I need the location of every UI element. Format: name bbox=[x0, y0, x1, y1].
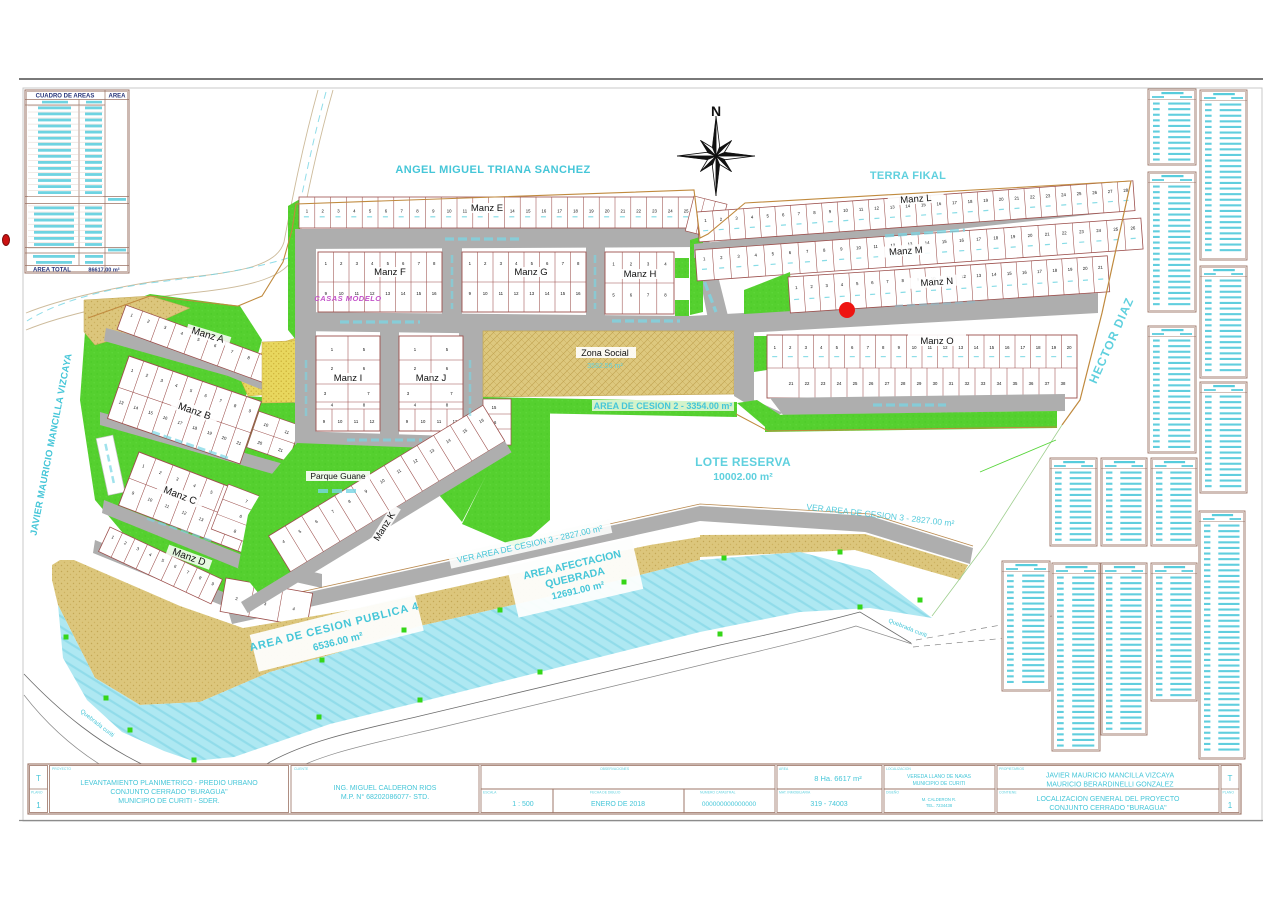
svg-text:TERRA FIKAL: TERRA FIKAL bbox=[870, 170, 946, 182]
svg-text:14: 14 bbox=[974, 345, 979, 350]
svg-text:Parque Guane: Parque Guane bbox=[310, 471, 366, 481]
svg-text:18: 18 bbox=[1036, 345, 1041, 350]
svg-text:33: 33 bbox=[981, 381, 986, 386]
svg-text:28: 28 bbox=[901, 381, 906, 386]
svg-text:25: 25 bbox=[684, 209, 689, 214]
svg-text:25: 25 bbox=[853, 381, 858, 386]
svg-text:N: N bbox=[711, 103, 721, 119]
svg-text:Manz H: Manz H bbox=[624, 269, 657, 280]
svg-text:1: 1 bbox=[1228, 801, 1233, 810]
svg-text:Manz J: Manz J bbox=[416, 373, 447, 384]
svg-text:ESCALA: ESCALA bbox=[483, 791, 497, 795]
svg-text:24: 24 bbox=[837, 381, 842, 386]
svg-text:16: 16 bbox=[576, 291, 581, 296]
svg-text:15: 15 bbox=[560, 291, 565, 296]
svg-text:ANGEL MIGUEL TRIANA SANCHEZ: ANGEL MIGUEL TRIANA SANCHEZ bbox=[395, 164, 590, 176]
svg-text:17: 17 bbox=[1020, 345, 1025, 350]
svg-text:MUNICIPIO DE CURITI: MUNICIPIO DE CURITI bbox=[913, 781, 966, 787]
svg-text:16: 16 bbox=[542, 209, 547, 214]
svg-text:20: 20 bbox=[1067, 345, 1072, 350]
svg-text:Manz L: Manz L bbox=[900, 193, 932, 206]
svg-text:18: 18 bbox=[573, 209, 578, 214]
svg-text:LOTE RESERVA: LOTE RESERVA bbox=[695, 455, 791, 469]
svg-text:M.P. N° 68202086077- STD.: M.P. N° 68202086077- STD. bbox=[341, 793, 429, 801]
svg-text:12: 12 bbox=[514, 291, 519, 296]
svg-text:CASAS MODELO: CASAS MODELO bbox=[314, 294, 381, 303]
svg-text:17: 17 bbox=[557, 209, 562, 214]
svg-text:32: 32 bbox=[965, 381, 970, 386]
svg-text:16: 16 bbox=[1005, 345, 1010, 350]
svg-text:36: 36 bbox=[1029, 381, 1034, 386]
svg-text:12: 12 bbox=[370, 419, 375, 424]
svg-text:CONJUNTO CERRADO "BURAGUA": CONJUNTO CERRADO "BURAGUA" bbox=[110, 789, 228, 796]
svg-text:11: 11 bbox=[499, 291, 504, 296]
svg-text:15: 15 bbox=[416, 291, 421, 296]
svg-text:LEVANTAMIENTO PLANIMETRICO - P: LEVANTAMIENTO PLANIMETRICO - PREDIO URBA… bbox=[80, 780, 258, 787]
svg-text:FECHA DE DIBUJO: FECHA DE DIBUJO bbox=[590, 791, 621, 795]
svg-text:10: 10 bbox=[338, 419, 343, 424]
svg-text:15: 15 bbox=[989, 345, 994, 350]
svg-text:MUNICIPIO DE CURITI - SDER.: MUNICIPIO DE CURITI - SDER. bbox=[118, 798, 220, 805]
svg-text:22: 22 bbox=[805, 381, 810, 386]
svg-text:VEREDA LLANO DE NAVAS: VEREDA LLANO DE NAVAS bbox=[907, 774, 972, 780]
svg-text:11: 11 bbox=[354, 419, 359, 424]
svg-text:000000000000000: 000000000000000 bbox=[702, 801, 757, 808]
svg-text:13: 13 bbox=[385, 291, 390, 296]
svg-text:37: 37 bbox=[1045, 381, 1050, 386]
svg-text:Zona Social: Zona Social bbox=[581, 348, 629, 358]
svg-text:M. CALDERON R.: M. CALDERON R. bbox=[922, 797, 956, 802]
svg-text:35: 35 bbox=[1013, 381, 1018, 386]
svg-text:Manz M: Manz M bbox=[889, 245, 924, 258]
svg-text:23: 23 bbox=[652, 209, 657, 214]
svg-text:29: 29 bbox=[917, 381, 922, 386]
svg-text:1: 1 bbox=[36, 801, 41, 810]
svg-text:30: 30 bbox=[933, 381, 938, 386]
svg-text:15: 15 bbox=[526, 209, 531, 214]
svg-text:MAURICIO BERARDINELLI GONZALEZ: MAURICIO BERARDINELLI GONZALEZ bbox=[1046, 782, 1174, 789]
svg-text:PROPIETARIOS: PROPIETARIOS bbox=[999, 767, 1025, 771]
svg-text:21: 21 bbox=[789, 381, 794, 386]
svg-text:10: 10 bbox=[483, 291, 488, 296]
svg-text:Manz O: Manz O bbox=[920, 336, 953, 347]
svg-text:PLANO: PLANO bbox=[31, 791, 43, 795]
svg-text:34: 34 bbox=[997, 381, 1002, 386]
svg-text:JAVIER MAURICIO MANCILLA VIZCA: JAVIER MAURICIO MANCILLA VIZCAYA bbox=[1046, 773, 1175, 780]
svg-text:ING. MIGUEL CALDERON RIOS: ING. MIGUEL CALDERON RIOS bbox=[334, 785, 437, 792]
svg-text:86617.00 m²: 86617.00 m² bbox=[88, 267, 119, 274]
svg-text:CONJUNTO CERRADO "BURAGUA": CONJUNTO CERRADO "BURAGUA" bbox=[1049, 805, 1167, 812]
svg-text:11: 11 bbox=[437, 419, 442, 424]
svg-text:22: 22 bbox=[636, 209, 641, 214]
svg-text:T: T bbox=[1228, 774, 1233, 783]
svg-text:31: 31 bbox=[949, 381, 954, 386]
svg-text:19: 19 bbox=[589, 209, 594, 214]
svg-text:10: 10 bbox=[421, 419, 426, 424]
svg-text:15: 15 bbox=[492, 405, 497, 410]
svg-text:NUMERO CATASTRAL: NUMERO CATASTRAL bbox=[700, 791, 736, 795]
svg-text:Manz E: Manz E bbox=[471, 203, 503, 214]
svg-text:10: 10 bbox=[447, 209, 452, 214]
svg-text:T: T bbox=[36, 774, 41, 783]
svg-text:Manz N: Manz N bbox=[920, 276, 954, 289]
svg-text:26: 26 bbox=[869, 381, 874, 386]
svg-text:CLIENTE: CLIENTE bbox=[294, 767, 309, 771]
svg-text:20: 20 bbox=[605, 209, 610, 214]
svg-text:1 : 500: 1 : 500 bbox=[512, 801, 534, 808]
svg-text:19: 19 bbox=[1051, 345, 1056, 350]
svg-text:14: 14 bbox=[510, 209, 515, 214]
svg-text:14: 14 bbox=[401, 291, 406, 296]
svg-text:38: 38 bbox=[1061, 381, 1066, 386]
svg-text:AREA: AREA bbox=[108, 94, 126, 100]
svg-text:LOCALIZACION: LOCALIZACION bbox=[886, 767, 911, 771]
svg-text:PLANO: PLANO bbox=[1223, 791, 1235, 795]
svg-text:11: 11 bbox=[463, 209, 468, 214]
svg-text:Manz G: Manz G bbox=[514, 267, 547, 278]
svg-text:23: 23 bbox=[821, 381, 826, 386]
svg-text:16: 16 bbox=[432, 291, 437, 296]
svg-text:LOCALIZACION GENERAL DEL PROYE: LOCALIZACION GENERAL DEL PROYECTO bbox=[1037, 796, 1180, 803]
svg-text:14: 14 bbox=[545, 291, 550, 296]
svg-text:DISEÑO: DISEÑO bbox=[886, 790, 899, 795]
svg-text:10002.00 m²: 10002.00 m² bbox=[713, 471, 773, 483]
svg-text:OBSERVACIONES: OBSERVACIONES bbox=[600, 767, 630, 771]
svg-text:8 Ha. 6617 m²: 8 Ha. 6617 m² bbox=[814, 774, 862, 783]
svg-text:24: 24 bbox=[668, 209, 673, 214]
svg-text:CONTIENE: CONTIENE bbox=[999, 791, 1017, 795]
svg-text:AREA: AREA bbox=[779, 767, 789, 771]
svg-text:TEL. 7234438: TEL. 7234438 bbox=[926, 803, 953, 808]
svg-text:27: 27 bbox=[885, 381, 890, 386]
svg-text:Manz F: Manz F bbox=[374, 267, 406, 278]
svg-text:CUADRO DE AREAS: CUADRO DE AREAS bbox=[36, 94, 95, 100]
svg-text:ENERO DE 2018: ENERO DE 2018 bbox=[591, 801, 645, 808]
svg-text:13: 13 bbox=[529, 291, 534, 296]
svg-text:3582.56 m²: 3582.56 m² bbox=[587, 363, 623, 370]
svg-text:PROYECTO: PROYECTO bbox=[52, 767, 71, 771]
svg-text:319 - 74003: 319 - 74003 bbox=[810, 801, 847, 808]
svg-text:AREA TOTAL: AREA TOTAL bbox=[33, 268, 71, 274]
svg-text:Manz I: Manz I bbox=[334, 373, 363, 384]
svg-text:AREA DE CESION 2 - 3354.00 m²: AREA DE CESION 2 - 3354.00 m² bbox=[594, 401, 733, 411]
svg-text:MAT. INMOBILIARIA: MAT. INMOBILIARIA bbox=[779, 791, 811, 795]
svg-text:21: 21 bbox=[621, 209, 626, 214]
